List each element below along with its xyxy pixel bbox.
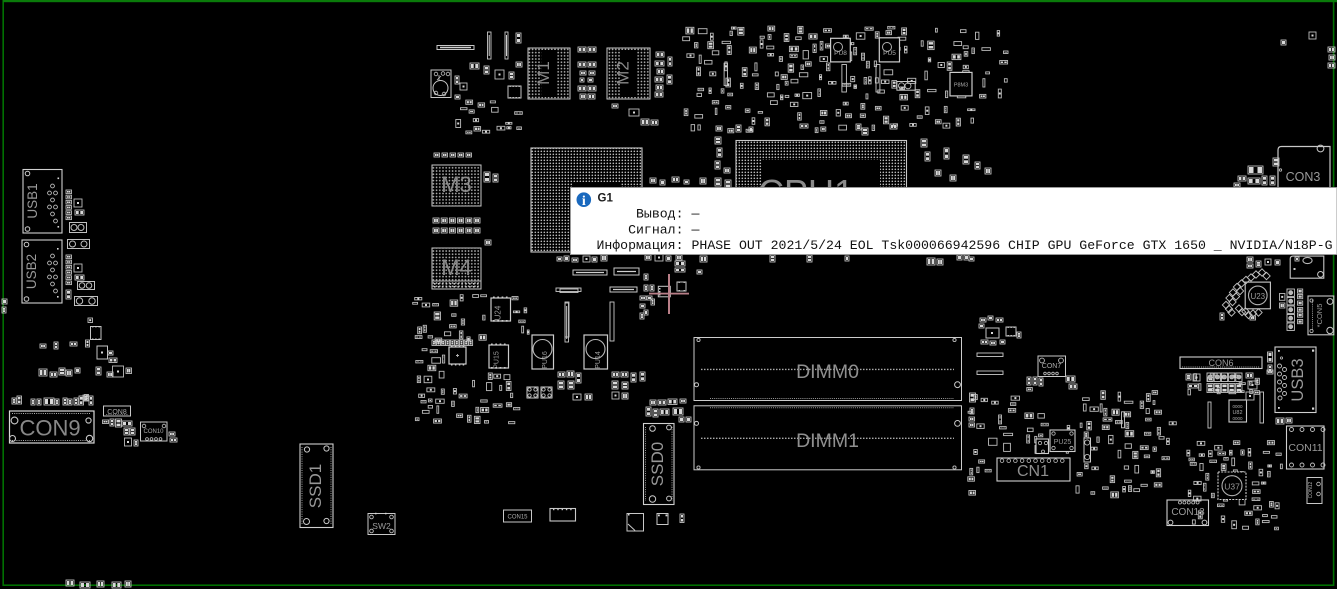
svg-text:PU8: PU8 — [834, 50, 847, 57]
svg-text:P8M3: P8M3 — [954, 83, 968, 89]
svg-text:CON7: CON7 — [1042, 363, 1062, 370]
svg-text:Информация:: Информация: — [596, 238, 683, 253]
svg-text:—: — — [691, 207, 700, 222]
svg-text:CON10: CON10 — [143, 429, 164, 435]
svg-text:Сигнал:: Сигнал: — [628, 222, 683, 237]
svg-text:PU5: PU5 — [883, 50, 896, 57]
svg-text:CON6: CON6 — [1208, 358, 1233, 368]
svg-text:0000: 0000 — [1232, 416, 1243, 421]
svg-text:SSD0: SSD0 — [648, 442, 667, 486]
svg-text:U23: U23 — [1250, 292, 1265, 301]
svg-text:SW2: SW2 — [372, 521, 391, 531]
svg-text:DIMM0: DIMM0 — [796, 361, 859, 383]
svg-text:CON11: CON11 — [1288, 442, 1322, 454]
svg-text:CON9: CON9 — [19, 416, 80, 441]
svg-text:0000: 0000 — [1232, 404, 1243, 409]
svg-text:*CON5: *CON5 — [1315, 304, 1324, 328]
svg-text:PU14: PU14 — [595, 351, 602, 369]
svg-text:PU15: PU15 — [494, 351, 501, 369]
svg-text:CN1: CN1 — [1017, 463, 1049, 480]
svg-text:i: i — [582, 194, 586, 209]
svg-text:CON12: CON12 — [1308, 481, 1314, 498]
svg-text:CON13: CON13 — [1171, 507, 1205, 518]
svg-text:DIMM1: DIMM1 — [796, 430, 859, 452]
svg-text:M1: M1 — [534, 61, 553, 85]
svg-text:PU25: PU25 — [1054, 439, 1072, 446]
svg-text:Вывод:: Вывод: — [636, 207, 683, 222]
svg-text:U24: U24 — [494, 305, 503, 320]
svg-text:M3: M3 — [441, 172, 472, 197]
svg-text:CON3: CON3 — [1286, 170, 1321, 184]
svg-text:PHASE OUT 2021/5/24 EOL Tsk000: PHASE OUT 2021/5/24 EOL Tsk000066942596 … — [692, 238, 1333, 253]
svg-text:PU16: PU16 — [542, 351, 549, 369]
svg-text:CON15: CON15 — [507, 515, 528, 521]
svg-text:USB1: USB1 — [25, 183, 40, 218]
svg-text:USB2: USB2 — [24, 254, 39, 289]
svg-text:U37: U37 — [1224, 482, 1240, 492]
svg-text:USB3: USB3 — [1289, 358, 1307, 401]
svg-text:M2: M2 — [614, 61, 633, 85]
svg-text:CON8: CON8 — [107, 409, 127, 416]
svg-text:—: — — [691, 222, 700, 237]
svg-text:G1: G1 — [598, 193, 614, 205]
svg-text:M4: M4 — [441, 255, 472, 280]
svg-text:SSD1: SSD1 — [306, 464, 325, 508]
